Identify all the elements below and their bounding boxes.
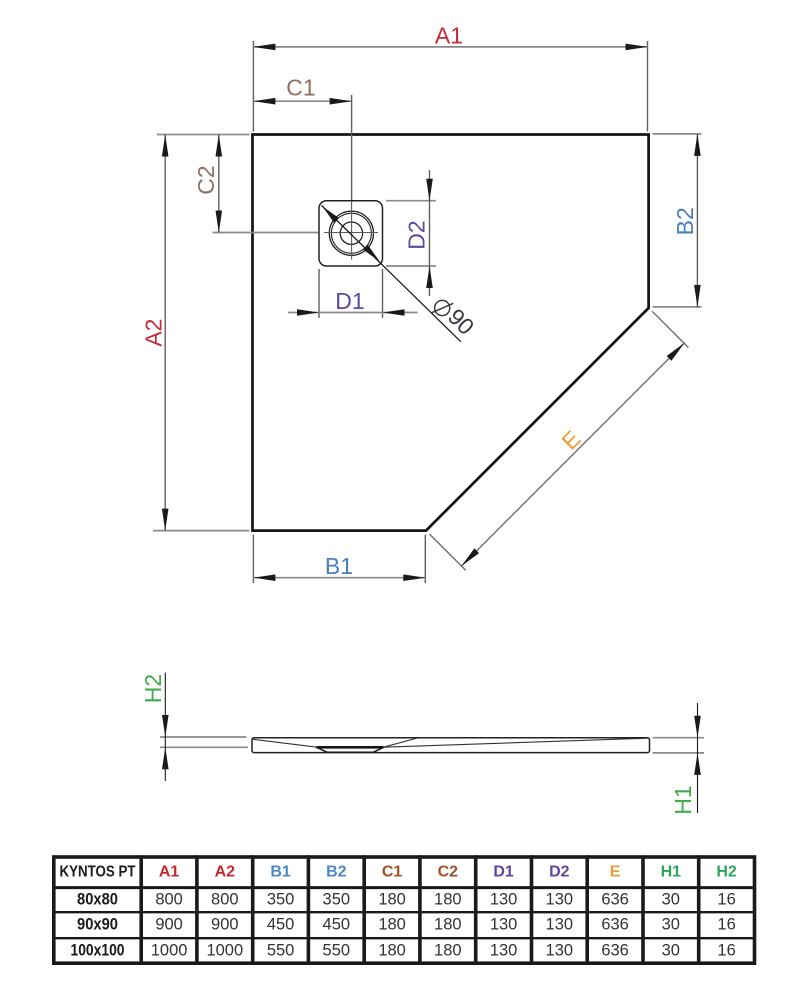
svg-text:636: 636 [601,941,629,959]
svg-text:130: 130 [546,891,574,909]
svg-text:30: 30 [662,941,680,959]
svg-text:B2: B2 [672,207,698,235]
svg-text:D1: D1 [493,864,514,881]
svg-text:450: 450 [323,916,351,934]
svg-text:180: 180 [434,941,462,959]
svg-text:180: 180 [378,891,406,909]
svg-text:130: 130 [546,916,574,934]
svg-text:800: 800 [155,891,183,909]
svg-text:1000: 1000 [151,941,188,959]
svg-text:C1: C1 [382,864,403,881]
svg-text:900: 900 [211,916,239,934]
svg-text:H1: H1 [670,785,696,814]
svg-text:D2: D2 [549,864,570,881]
svg-text:900: 900 [155,916,183,934]
svg-text:B1: B1 [270,864,291,881]
svg-text:550: 550 [267,941,295,959]
svg-text:350: 350 [323,891,351,909]
svg-text:800: 800 [211,891,239,909]
svg-text:180: 180 [378,916,406,934]
svg-text:100x100: 100x100 [71,941,125,959]
svg-text:80x80: 80x80 [77,891,118,909]
svg-text:1000: 1000 [206,941,243,959]
svg-text:A1: A1 [159,864,180,881]
svg-text:C2: C2 [438,864,459,881]
svg-text:H2: H2 [716,864,737,881]
svg-text:D2: D2 [403,220,429,249]
svg-text:C1: C1 [286,75,315,101]
svg-text:180: 180 [378,941,406,959]
svg-text:E: E [556,425,585,454]
svg-text:636: 636 [601,916,629,934]
svg-text:D1: D1 [335,288,364,314]
svg-text:636: 636 [601,891,629,909]
svg-text:180: 180 [434,891,462,909]
svg-text:130: 130 [546,941,574,959]
svg-text:130: 130 [490,916,518,934]
svg-text:E: E [610,864,621,881]
svg-text:C2: C2 [193,165,219,194]
svg-text:A1: A1 [435,23,463,49]
svg-text:130: 130 [490,941,518,959]
svg-text:B1: B1 [325,553,353,579]
svg-text:90x90: 90x90 [77,916,118,934]
svg-text:16: 16 [717,941,735,959]
svg-text:30: 30 [662,916,680,934]
svg-text:30: 30 [662,891,680,909]
svg-text:350: 350 [267,891,295,909]
svg-text:A2: A2 [140,319,166,347]
svg-text:16: 16 [717,891,735,909]
svg-text:130: 130 [490,891,518,909]
svg-text:H2: H2 [140,674,166,703]
svg-text:B2: B2 [326,864,347,881]
svg-text:16: 16 [717,916,735,934]
svg-text:A2: A2 [215,864,236,881]
svg-text:550: 550 [323,941,351,959]
svg-text:450: 450 [267,916,295,934]
svg-text:H1: H1 [661,864,682,881]
svg-text:KYNTOS PT: KYNTOS PT [60,864,136,881]
svg-text:180: 180 [434,916,462,934]
